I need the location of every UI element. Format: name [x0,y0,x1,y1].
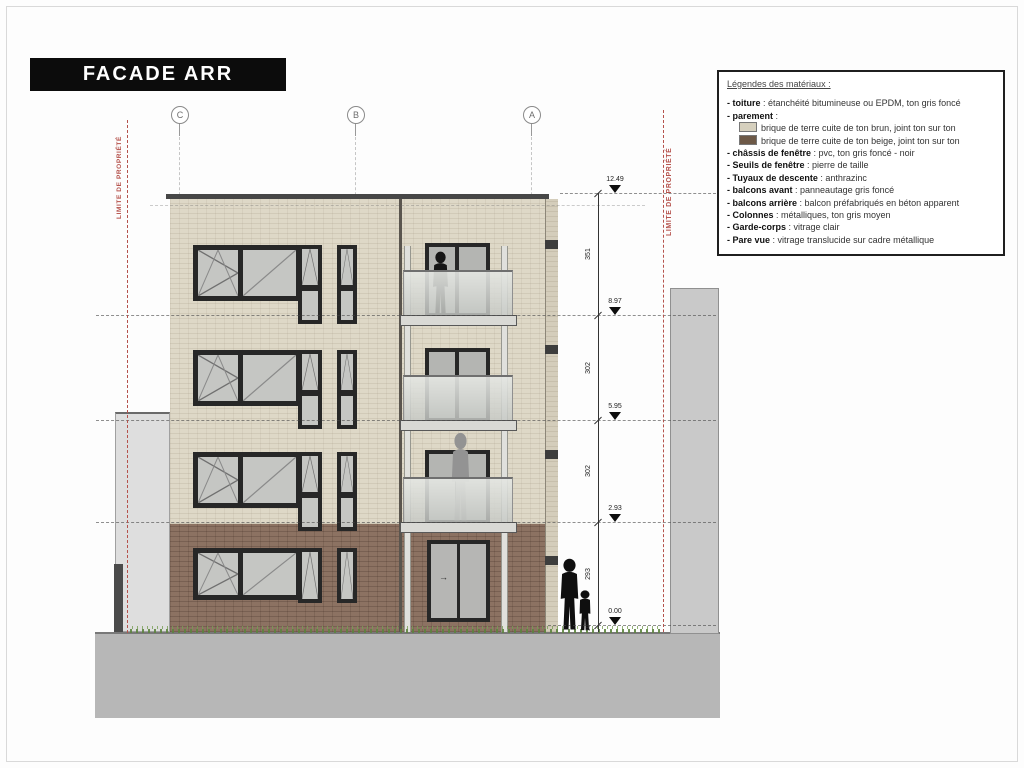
balcony-glass-railing [403,375,513,421]
level-dashline [96,420,716,421]
window-narrow [337,452,357,531]
window-narrow [298,350,322,429]
balcony-glass-railing [403,477,513,523]
grid-line-c [179,123,180,136]
window-pane [302,249,318,285]
window-narrow [298,548,322,603]
window-narrow [298,452,322,531]
legend-item: - Garde-corps : vitrage clair [727,221,995,233]
entrance-door: → [427,540,490,622]
level-marker-icon [609,307,621,315]
roof-slab-dashline [150,205,645,206]
side-window-reveal [545,450,558,459]
balcony-glass-railing [403,270,513,316]
level-dashline [560,193,716,194]
window-pane [243,355,296,401]
level-value: 5.95 [598,403,632,410]
level-dashline [96,315,716,316]
property-limit-label-left: LIMITE DE PROPRIÉTÉ [116,127,123,219]
window-pane [243,553,296,595]
grid-axis-b: B [347,106,365,124]
level-value: 0.00 [598,608,632,615]
balcony-slab [400,522,517,533]
balcony-slab [400,420,517,431]
window-pane [302,354,318,390]
door-leaf [460,544,486,618]
window-pane [302,456,318,492]
window-pane [198,250,238,296]
materials-legend: Légendes des matériaux : - toiture : éta… [717,70,1005,256]
window-narrow [337,350,357,429]
left-annex-pilaster [114,564,123,632]
property-limit-label-right: LIMITE DE PROPRIÉTÉ [666,116,673,236]
level-marker-icon [609,185,621,193]
window-pane [243,250,296,296]
brick-swatch-light [739,122,757,132]
window-pane [341,354,353,390]
window-narrow [298,245,322,324]
grid-axis-a: A [523,106,541,124]
window-large [193,548,301,600]
elevation-drawing-sheet: FACADE ARR Légendes des matériaux : - to… [0,0,1024,768]
door-swing-arrow: → [439,572,448,582]
legend-item: - balcons arrière : balcon préfabriqués … [727,197,995,209]
window-pane [341,456,353,492]
window-pane [341,552,353,599]
legend-item: - Seuils de fenêtre : pierre de taille [727,159,995,171]
dimension-value: 351 [585,234,595,274]
level-marker-icon [609,412,621,420]
window-pane [243,457,296,503]
legend-item: - toiture : étanchéité bitumineuse ou EP… [727,97,995,109]
legend-item: - Pare vue : vitrage translucide sur cad… [727,234,995,246]
level-marker-icon [609,617,621,625]
brick-swatch-dark [739,135,757,145]
window-pane [198,355,238,401]
grid-axis-c: C [171,106,189,124]
level-value: 8.97 [598,298,632,305]
neighbor-building-wall [670,288,719,634]
window-narrow [337,548,357,603]
balcony-slab [400,315,517,326]
window-large [193,245,301,301]
grid-line-a [531,123,532,136]
property-limit-line-left [127,120,128,633]
dimension-value: 293 [585,554,595,594]
window-pane [341,249,353,285]
window-large [193,452,301,508]
dimension-value: 302 [585,348,595,388]
ground-offset-value: 10 [586,618,594,638]
window-pane [198,553,238,595]
legend-item: brique de terre cuite de ton beige, join… [727,135,995,147]
legend-item: - balcons avant : panneautage gris foncé [727,184,995,196]
level-value: 2.93 [598,505,632,512]
level-value: 12.49 [598,176,632,183]
grid-line-b [355,123,356,136]
drawing-title: FACADE ARR [30,58,286,91]
legend-item: - Colonnes : métalliques, ton gris moyen [727,209,995,221]
legend-item: - châssis de fenêtre : pvc, ton gris fon… [727,147,995,159]
level-dashline [96,522,716,523]
side-window-reveal [545,240,558,249]
dimension-line [598,193,599,632]
level-dashline [548,625,716,626]
ground-pavement [95,632,720,718]
dimension-value: 302 [585,451,595,491]
property-limit-line-right [663,110,664,632]
legend-item: brique de terre cuite de ton brun, joint… [727,122,995,134]
window-narrow [337,245,357,324]
window-pane [198,457,238,503]
legend-item: - Tuyaux de descente : anthrazinc [727,172,995,184]
window-pane [302,552,318,599]
level-marker-icon [609,514,621,522]
side-window-reveal [545,345,558,354]
legend-title: Légendes des matériaux : [727,78,995,90]
facade-corner-recess [399,199,402,632]
window-large [193,350,301,406]
legend-item: - parement : [727,110,995,122]
